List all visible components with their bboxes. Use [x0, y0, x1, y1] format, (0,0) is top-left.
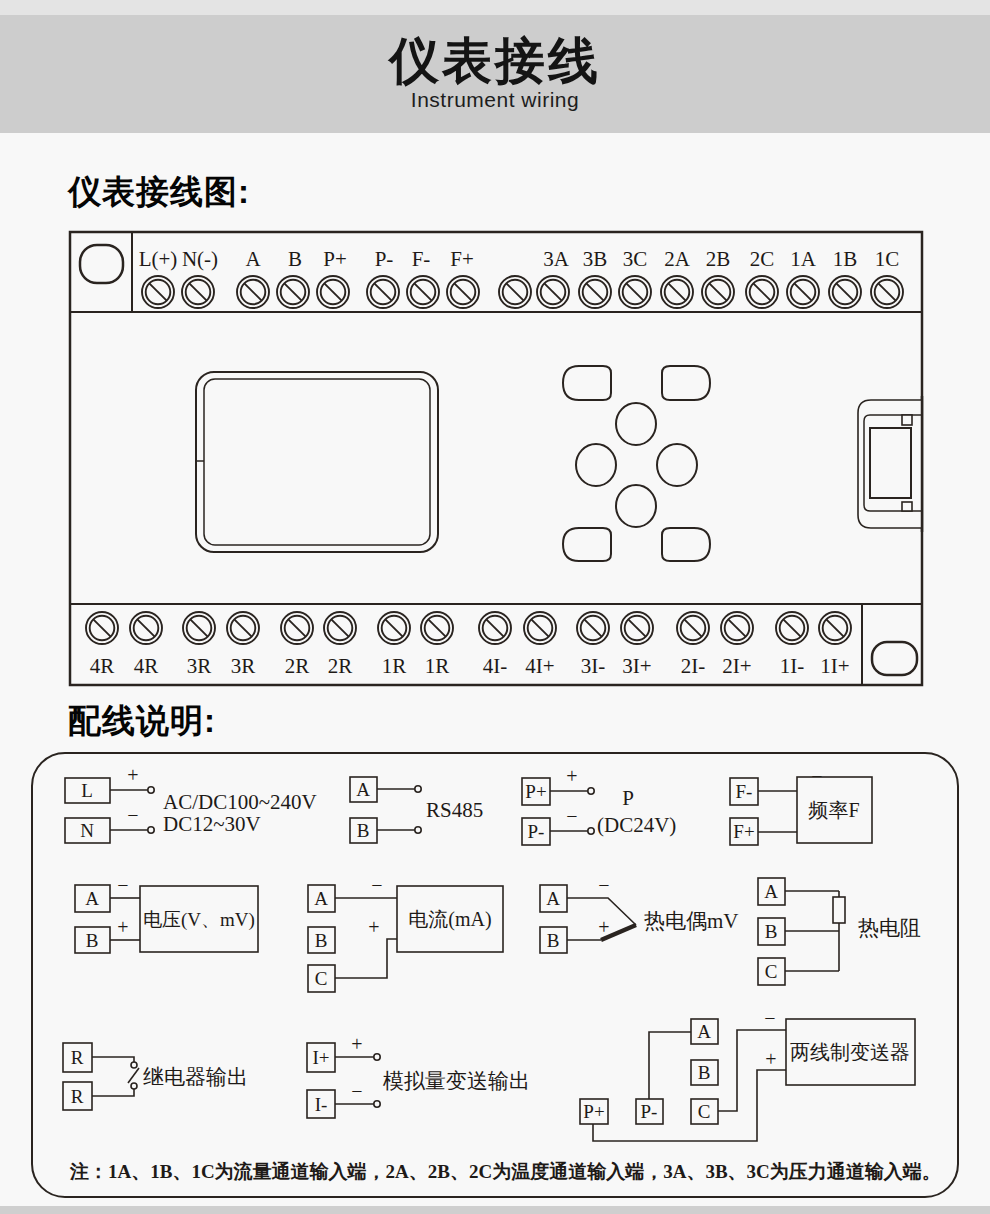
key-bottom-right-icon	[662, 528, 710, 561]
key-top-right-icon	[662, 366, 710, 400]
terminal-label: 1B	[833, 247, 858, 271]
terminal-label: 2B	[706, 247, 731, 271]
terminal-box-c: C	[698, 1101, 711, 1122]
terminal-label: 3B	[583, 247, 608, 271]
terminal-label: 4I+	[525, 654, 554, 678]
rtd-label: 热电阻	[858, 916, 921, 940]
wiring-section-heading: 配线说明:	[68, 699, 216, 744]
terminal-label: 3I-	[581, 654, 606, 678]
power-range-1: AC/DC100~240V	[163, 790, 317, 814]
screw-terminal-icon	[702, 276, 734, 308]
screw-terminal-icon	[787, 276, 819, 308]
dc24-detail: (DC24V)	[597, 813, 676, 837]
terminal-box-f-minus: F-	[736, 781, 753, 802]
terminal-label: 2C	[750, 247, 775, 271]
top-terminal-labels: L(+)N(-)ABP+P-F-F+3A3B3C2A2B2C1A1B1C	[139, 247, 900, 271]
plus-sign: +	[117, 916, 128, 938]
terminal-label: L(+)	[139, 247, 178, 271]
screw-terminal-icon	[479, 612, 511, 644]
key-bottom-left-icon	[563, 528, 611, 561]
terminal-box-a: A	[697, 1021, 711, 1042]
power-supply-wiring: L N + − AC/DC100~240V DC12~30V	[65, 764, 317, 843]
plus-sign: +	[765, 1048, 776, 1070]
terminal-label: N(-)	[182, 247, 218, 271]
bottom-gray-strip	[0, 1206, 990, 1214]
key-top-left-icon	[563, 366, 611, 400]
terminal-box-c: C	[765, 961, 778, 982]
minus-sign: −	[598, 874, 609, 896]
screw-terminal-icon	[86, 612, 118, 644]
terminal-label: 1C	[875, 247, 900, 271]
terminal-box-p-plus: P+	[583, 1101, 604, 1122]
instrument-wiring-page: 仪表接线 Instrument wiring 仪表接线图:	[0, 0, 990, 1214]
relay-output-wiring: R R 继电器输出	[63, 1043, 248, 1110]
terminal-label: 1A	[790, 247, 817, 271]
screw-terminal-icon	[577, 612, 609, 644]
plus-sign: +	[127, 764, 138, 786]
plus-sign: +	[598, 916, 609, 938]
thermocouple-label: 热电偶mV	[644, 909, 739, 933]
diagram-section-heading: 仪表接线图:	[68, 170, 250, 215]
minus-sign: −	[117, 874, 128, 896]
terminal-label: 3C	[623, 247, 648, 271]
terminal-box-p-minus: P-	[528, 821, 545, 842]
screw-terminal-icon	[746, 276, 778, 308]
screw-terminal-icon	[183, 612, 215, 644]
screw-terminal-icon	[829, 276, 861, 308]
screw-terminal-icon	[447, 276, 479, 308]
terminal-box-c: C	[315, 968, 328, 989]
screw-terminal-icon	[721, 612, 753, 644]
voltage-device-label: 电压(V、mV)	[143, 909, 255, 931]
channel-note: 注：1A、1B、1C为流量通道输入端，2A、2B、2C为温度通道输入端，3A、3…	[69, 1161, 941, 1182]
terminal-box-i-plus: I+	[312, 1047, 329, 1068]
terminal-label: 2I+	[722, 654, 751, 678]
minus-sign: −	[127, 804, 138, 826]
terminal-label: 1I-	[780, 654, 805, 678]
terminal-label: 2I-	[681, 654, 706, 678]
screw-terminal-icon	[130, 612, 162, 644]
screw-terminal-icon	[324, 612, 356, 644]
terminal-box-r2: R	[71, 1086, 84, 1107]
terminal-box-a: A	[85, 888, 99, 909]
screw-terminal-icon	[367, 276, 399, 308]
terminal-box-a: A	[546, 888, 560, 909]
minus-sign: −	[371, 874, 382, 896]
bottom-terminal-labels: 4R4R3R3R2R2R1R1R4I-4I+3I-3I+2I-2I+1I-1I+	[90, 654, 850, 678]
dc24-output-wiring: P+ P- + − P (DC24V)	[522, 765, 676, 845]
terminal-label: 1I+	[820, 654, 849, 678]
terminal-label: 2R	[285, 654, 310, 678]
screw-terminal-icon	[142, 276, 174, 308]
terminal-box-n: N	[80, 820, 94, 841]
terminal-box-b: B	[547, 930, 560, 951]
terminal-box-a: A	[314, 888, 328, 909]
frequency-device-label: 频率F	[808, 799, 859, 821]
screw-terminal-icon	[281, 612, 313, 644]
terminal-box-a: A	[356, 779, 370, 800]
rs485-label: RS485	[426, 798, 483, 822]
plus-sign: +	[566, 765, 577, 787]
bottom-screw-terminals	[86, 612, 851, 644]
screw-terminal-icon	[871, 276, 903, 308]
top-screw-terminals	[142, 276, 903, 308]
key-up-icon	[616, 403, 656, 445]
display-window	[196, 372, 438, 552]
transmitter-device-label: 两线制变送器	[790, 1041, 910, 1063]
resistor-symbol-icon	[833, 897, 845, 923]
screw-terminal-icon	[499, 276, 531, 308]
screw-terminal-icon	[421, 612, 453, 644]
terminal-label: 2R	[328, 654, 353, 678]
screw-terminal-icon	[579, 276, 611, 308]
screw-terminal-icon	[619, 276, 651, 308]
terminal-label: 4I-	[483, 654, 508, 678]
wiring-explanation-diagram: L N + − AC/DC100~240V DC12~30V A B RS485	[0, 745, 990, 1210]
rtd-wiring: A B C 热电阻	[758, 878, 921, 985]
terminal-box-l: L	[81, 780, 93, 801]
screw-terminal-icon	[317, 276, 349, 308]
voltage-wiring: A B − + 电压(V、mV)	[75, 874, 258, 953]
terminal-label: 4R	[90, 654, 115, 678]
screw-terminal-icon	[661, 276, 693, 308]
screw-terminal-icon	[237, 276, 269, 308]
terminal-box-b: B	[357, 820, 370, 841]
terminal-box-b: B	[315, 930, 328, 951]
minus-sign: −	[566, 805, 577, 827]
plus-sign: +	[351, 1033, 362, 1055]
terminal-box-f-plus: F+	[733, 821, 754, 842]
terminal-box-b: B	[86, 930, 99, 951]
relay-output-label: 继电器输出	[143, 1065, 248, 1089]
minus-sign: −	[764, 1007, 775, 1029]
terminal-label: B	[288, 247, 302, 271]
terminal-label: 3A	[543, 247, 570, 271]
power-range-2: DC12~30V	[163, 812, 261, 836]
terminal-label: 4R	[134, 654, 159, 678]
screw-terminal-icon	[776, 612, 808, 644]
analog-output-wiring: I+ I- + − 模拟量变送输出	[307, 1033, 530, 1118]
page-title: 仪表接线	[389, 36, 601, 86]
terminal-box-i-minus: I-	[315, 1094, 328, 1115]
terminal-label: 1R	[425, 654, 450, 678]
terminal-box-r1: R	[71, 1047, 84, 1068]
terminal-label: P+	[323, 247, 347, 271]
terminal-label: 3R	[231, 654, 256, 678]
plus-sign: +	[368, 916, 379, 938]
terminal-label: 3R	[187, 654, 212, 678]
terminal-box-b: B	[765, 921, 778, 942]
top-light-strip	[0, 0, 990, 15]
instrument-terminal-diagram: L(+)N(-)ABP+P-F-F+3A3B3C2A2B2C1A1B1C 4R4…	[65, 228, 925, 690]
frequency-wiring: F- F+ − + 频率F	[730, 765, 872, 845]
current-device-label: 电流(mA)	[408, 908, 491, 931]
switch-blade-icon	[128, 1068, 139, 1083]
side-connector	[858, 396, 922, 532]
screw-terminal-icon	[621, 612, 653, 644]
mounting-slot-top-left-icon	[80, 245, 123, 283]
screw-terminal-icon	[378, 612, 410, 644]
screw-terminal-icon	[677, 612, 709, 644]
terminal-label: P-	[375, 247, 394, 271]
screw-terminal-icon	[227, 612, 259, 644]
analog-output-label: 模拟量变送输出	[382, 1069, 530, 1093]
mounting-slot-bottom-right-icon	[872, 642, 917, 675]
screw-terminal-icon	[407, 276, 439, 308]
dc24-name: P	[622, 786, 634, 810]
rs485-wiring: A B RS485	[350, 777, 483, 843]
terminal-label: 2A	[664, 247, 691, 271]
terminal-box-p-plus: P+	[525, 781, 546, 802]
two-wire-transmitter-wiring: A B C P- P+ − + 两线制变送器	[580, 1007, 915, 1141]
key-down-icon	[616, 485, 656, 527]
screw-terminal-icon	[277, 276, 309, 308]
screw-terminal-icon	[819, 612, 851, 644]
screw-terminal-icon	[537, 276, 569, 308]
thermocouple-wiring: A B − + 热电偶mV	[540, 874, 739, 953]
terminal-label: 1R	[382, 654, 407, 678]
page-subtitle: Instrument wiring	[411, 88, 579, 112]
keypad	[563, 366, 710, 561]
key-left-icon	[576, 444, 616, 486]
key-right-icon	[657, 444, 697, 486]
screw-terminal-icon	[182, 276, 214, 308]
terminal-label: A	[245, 247, 261, 271]
terminal-label: 3I+	[622, 654, 651, 678]
terminal-label: F+	[450, 247, 474, 271]
current-wiring: A B C − + 电流(mA)	[308, 874, 503, 992]
header-banner: 仪表接线 Instrument wiring	[0, 15, 990, 133]
screw-terminal-icon	[524, 612, 556, 644]
terminal-box-a: A	[764, 881, 778, 902]
terminal-box-p-minus: P-	[641, 1101, 658, 1122]
terminal-box-b: B	[698, 1062, 711, 1083]
terminal-label: F-	[412, 247, 431, 271]
minus-sign: −	[351, 1080, 362, 1102]
